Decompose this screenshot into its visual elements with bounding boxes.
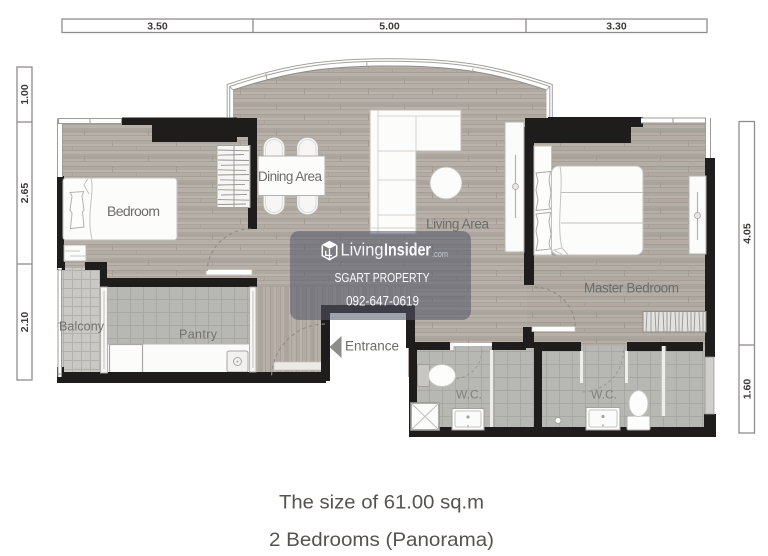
svg-text:1.00: 1.00 <box>19 84 31 105</box>
svg-text:2.65: 2.65 <box>19 183 31 204</box>
svg-text:2 Bedrooms (Panorama): 2 Bedrooms (Panorama) <box>269 529 494 551</box>
svg-text:Living Area: Living Area <box>426 217 489 232</box>
svg-text:Pantry: Pantry <box>179 328 218 342</box>
svg-text:092-647-0619: 092-647-0619 <box>346 294 419 309</box>
svg-text:Entrance: Entrance <box>345 339 399 354</box>
svg-text:W.C.: W.C. <box>591 388 617 402</box>
svg-text:.com: .com <box>432 249 448 260</box>
svg-text:Insider: Insider <box>384 240 431 260</box>
svg-text:Living: Living <box>341 240 384 260</box>
svg-text:Master Bedroom: Master Bedroom <box>584 281 679 296</box>
svg-text:4.05: 4.05 <box>742 223 754 244</box>
svg-text:3.50: 3.50 <box>147 21 168 33</box>
svg-text:SGART PROPERTY: SGART PROPERTY <box>335 270 430 285</box>
svg-text:2.10: 2.10 <box>19 312 31 333</box>
svg-text:1.60: 1.60 <box>742 379 754 400</box>
svg-text:Bedroom: Bedroom <box>107 203 160 219</box>
svg-text:5.00: 5.00 <box>379 21 400 33</box>
svg-text:The size of 61.00 sq.m: The size of 61.00 sq.m <box>279 492 484 514</box>
svg-text:W.C.: W.C. <box>456 388 482 402</box>
svg-text:Balcony: Balcony <box>59 320 105 334</box>
svg-text:3.30: 3.30 <box>606 21 627 33</box>
svg-text:Dining Area: Dining Area <box>258 169 322 184</box>
